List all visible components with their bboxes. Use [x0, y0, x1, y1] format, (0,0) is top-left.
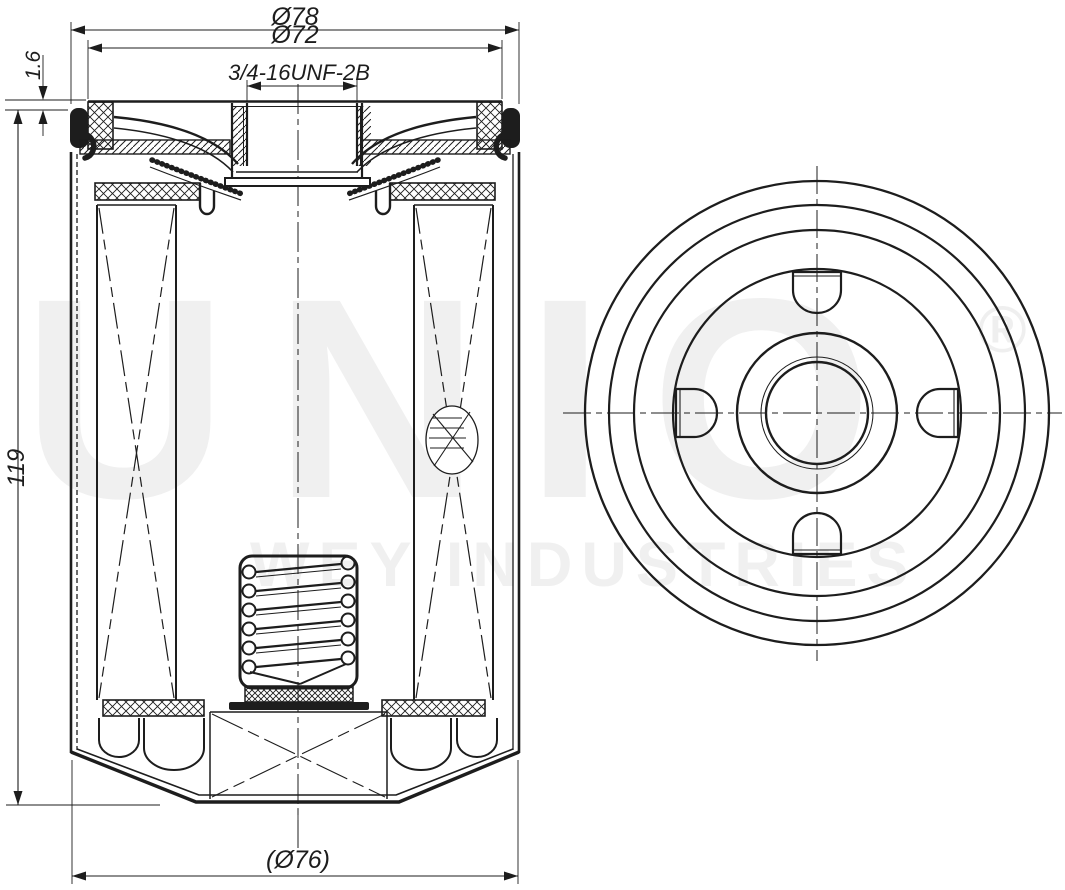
technical-drawing-canvas: UNIO ® WEY INDUSTRIES	[0, 0, 1065, 890]
watermark-brand: UNIO	[22, 240, 919, 558]
retainer-plate	[225, 178, 370, 186]
dim-text-d72: Ø72	[270, 21, 318, 49]
drawing-sheet: UNIO ® WEY INDUSTRIES	[0, 0, 1065, 890]
spring-seat-pad	[229, 686, 369, 710]
bypass-valve-detail	[426, 406, 478, 474]
end-cap-bottom-left	[103, 700, 204, 716]
end-cap-top-right	[376, 183, 495, 214]
baseplate-section	[80, 140, 510, 154]
dim-text-thread-spec: 3/4-16UNF-2B	[228, 60, 370, 85]
dim-text-height-119: 119	[3, 449, 30, 487]
watermark-registered-icon: ®	[978, 292, 1027, 366]
end-cap-top-left	[95, 183, 214, 214]
dim-text-d76: (Ø76)	[266, 846, 330, 874]
end-cap-bottom-right	[382, 700, 485, 716]
watermark: UNIO ® WEY INDUSTRIES	[22, 240, 1027, 600]
dim-text-seam-1-6: 1.6	[22, 50, 45, 80]
